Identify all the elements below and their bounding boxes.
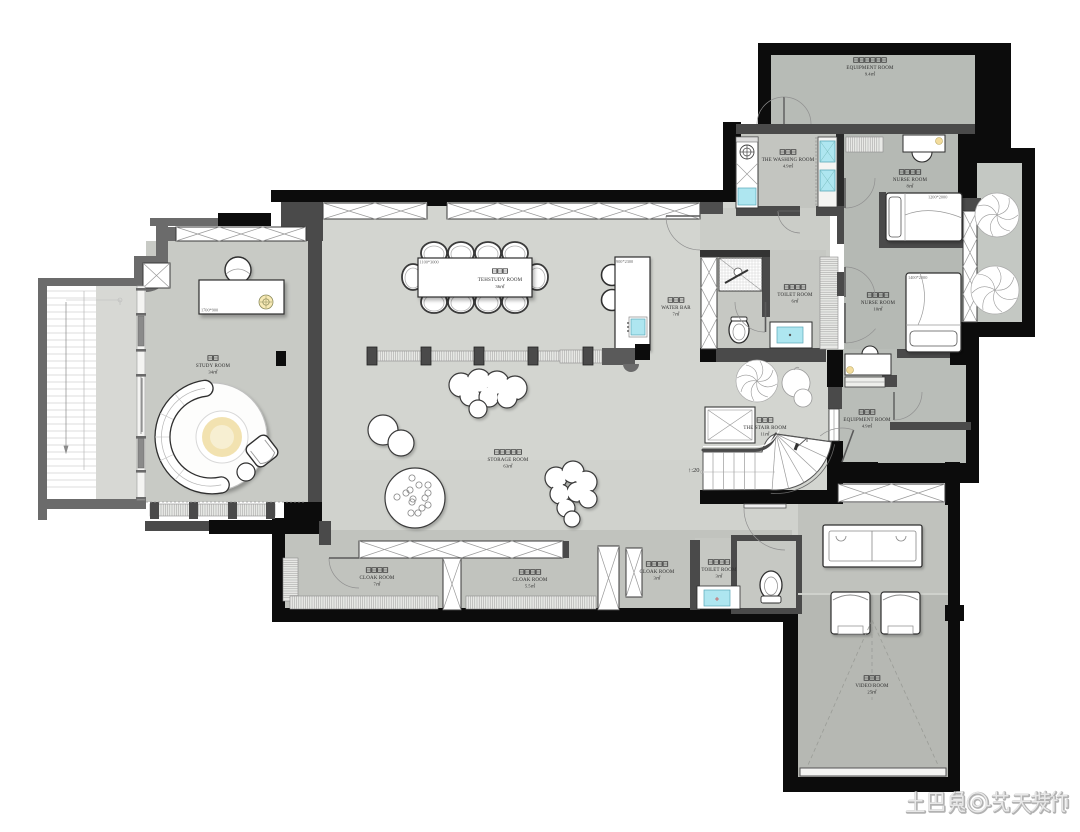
- svg-text:1100*3000: 1100*3000: [420, 260, 439, 265]
- svg-text:3㎡: 3㎡: [716, 573, 723, 579]
- svg-text:TOILET ROOM: TOILET ROOM: [777, 293, 813, 298]
- svg-text:NURSE ROOM: NURSE ROOM: [893, 178, 928, 183]
- svg-text:TOILET ROOM: TOILET ROOM: [701, 568, 737, 573]
- svg-text:4.9㎡: 4.9㎡: [862, 423, 873, 429]
- svg-text:VIDEO ROOM: VIDEO ROOM: [855, 684, 889, 689]
- svg-text:5.5㎡: 5.5㎡: [525, 583, 536, 589]
- svg-text:TEHSTUDY ROOM: TEHSTUDY ROOM: [478, 278, 523, 283]
- svg-text:6㎡: 6㎡: [792, 298, 799, 304]
- svg-text:STORAGE ROOM: STORAGE ROOM: [487, 458, 528, 463]
- svg-text:THE STAIR ROOM: THE STAIR ROOM: [743, 426, 787, 431]
- svg-text:1700*900: 1700*900: [201, 308, 218, 313]
- svg-text:EQUIPMENT ROOM: EQUIPMENT ROOM: [843, 418, 891, 423]
- svg-text:34㎡: 34㎡: [208, 369, 218, 375]
- svg-text:7㎡: 7㎡: [374, 581, 381, 587]
- svg-text:10㎡: 10㎡: [873, 306, 883, 312]
- svg-text:STUDY ROOM: STUDY ROOM: [196, 364, 231, 369]
- svg-text:25㎡: 25㎡: [867, 689, 877, 695]
- svg-text:900*2300: 900*2300: [616, 259, 633, 264]
- svg-text:NURSE ROOM: NURSE ROOM: [861, 301, 896, 306]
- svg-text:CLOAK ROOM: CLOAK ROOM: [640, 570, 675, 575]
- svg-text:1200*2000: 1200*2000: [928, 195, 947, 200]
- svg-text:1400*2000: 1400*2000: [908, 275, 927, 280]
- svg-text:11㎡: 11㎡: [760, 431, 769, 437]
- svg-text:9.4㎡: 9.4㎡: [865, 71, 876, 77]
- svg-text:4.9㎡: 4.9㎡: [783, 163, 794, 169]
- svg-text:8㎡: 8㎡: [907, 183, 914, 189]
- svg-text:3㎡: 3㎡: [654, 575, 661, 581]
- svg-text:7㎡: 7㎡: [673, 311, 680, 317]
- svg-text:↑:20: ↑:20: [688, 467, 700, 474]
- svg-text:THE WASHING ROOM: THE WASHING ROOM: [762, 158, 815, 163]
- svg-text:CLOAK ROOM: CLOAK ROOM: [360, 576, 395, 581]
- svg-text:CLOAK ROOM: CLOAK ROOM: [513, 578, 548, 583]
- svg-text:63㎡: 63㎡: [503, 463, 513, 469]
- svg-text:EQUIPMENT ROOM: EQUIPMENT ROOM: [846, 66, 894, 71]
- svg-text:WATER BAR: WATER BAR: [661, 306, 691, 311]
- svg-text:36㎡: 36㎡: [495, 283, 505, 289]
